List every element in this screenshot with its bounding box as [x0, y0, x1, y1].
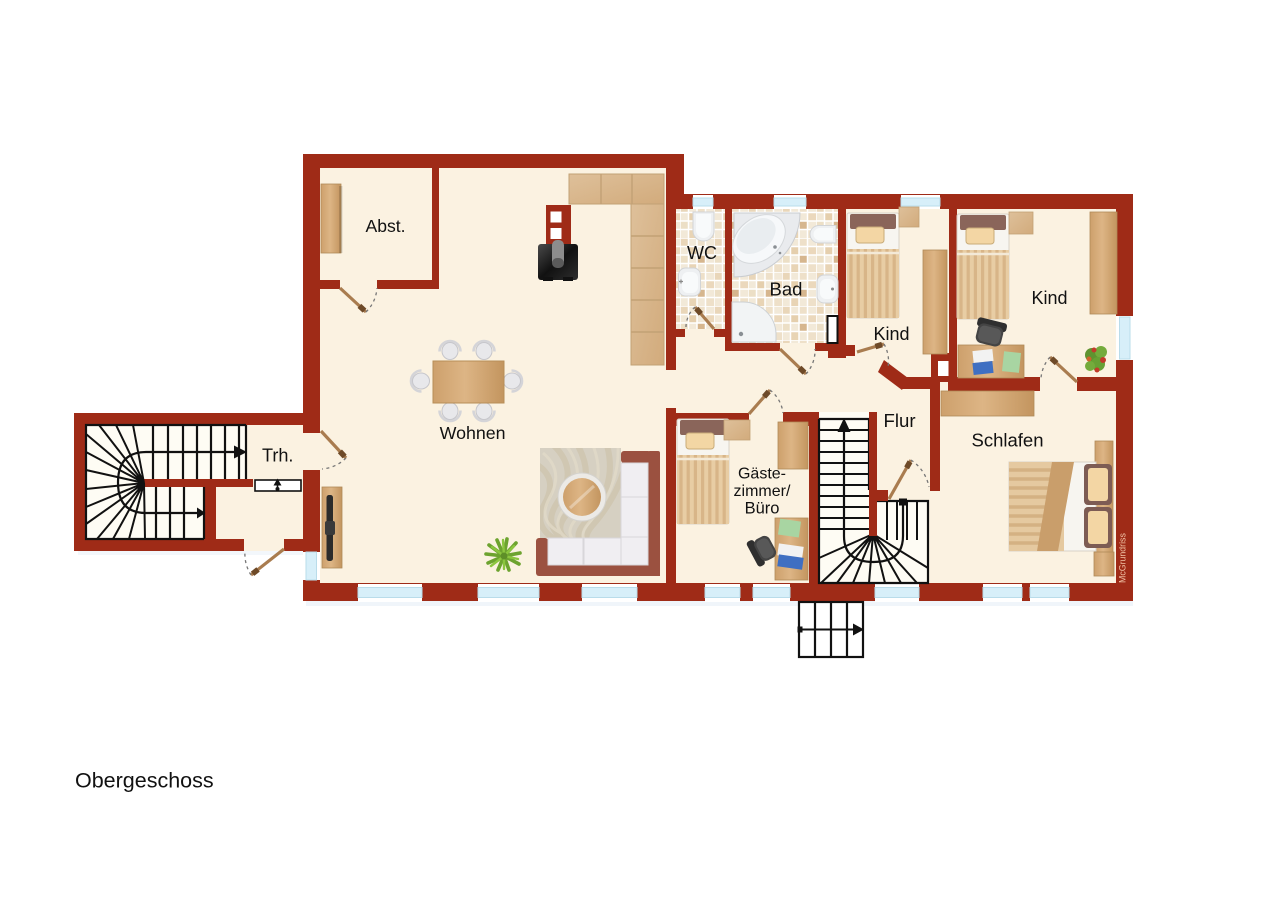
svg-text:zimmer/: zimmer/: [734, 483, 791, 500]
svg-text:Kind: Kind: [873, 324, 909, 344]
svg-text:Gäste-: Gäste-: [738, 466, 786, 483]
svg-text:Bad: Bad: [770, 279, 803, 300]
svg-text:McGrundriss: McGrundriss: [1118, 533, 1128, 583]
svg-text:Schlafen: Schlafen: [972, 430, 1044, 451]
svg-text:WC: WC: [687, 243, 717, 263]
svg-text:Wohnen: Wohnen: [440, 423, 506, 443]
svg-text:Kind: Kind: [1031, 288, 1067, 308]
svg-text:Abst.: Abst.: [365, 216, 405, 236]
svg-text:Büro: Büro: [745, 500, 780, 518]
svg-text:Flur: Flur: [883, 410, 915, 431]
svg-text:Obergeschoss: Obergeschoss: [75, 769, 214, 793]
svg-text:Trh.: Trh.: [262, 446, 294, 466]
